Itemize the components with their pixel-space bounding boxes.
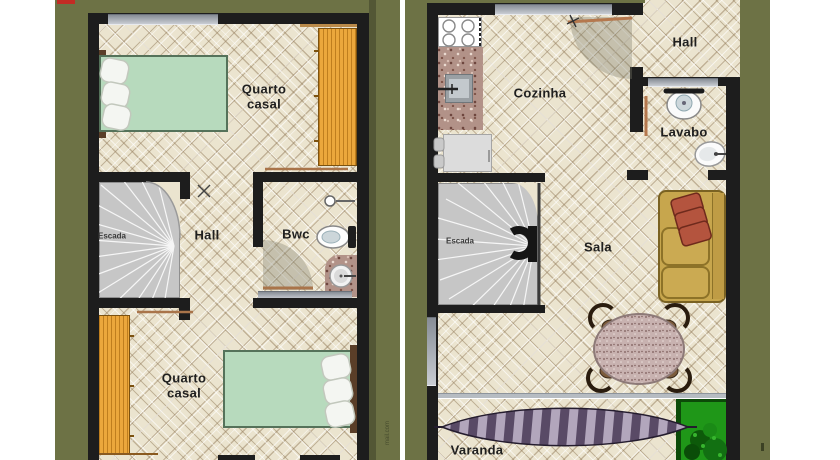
room-label-quarto-casal-upper: Quarto casal bbox=[242, 82, 286, 111]
left-plan-edge-shadow bbox=[369, 0, 376, 460]
floorplan-page: Quarto casal Hall Bwc Escada Quarto casa… bbox=[0, 0, 840, 460]
room-label-hall-left: Hall bbox=[194, 229, 219, 244]
wall-bwc-left bbox=[253, 182, 263, 247]
tiny-watermark-mark bbox=[761, 443, 764, 451]
double-bed-icon bbox=[223, 350, 355, 428]
room-label-hall-right: Hall bbox=[672, 36, 697, 51]
panel-divider bbox=[400, 0, 405, 460]
room-label-quarto-casal-lower: Quarto casal bbox=[162, 371, 206, 400]
wall-bottom-segment bbox=[300, 455, 340, 460]
red-mark bbox=[57, 0, 75, 4]
wardrobe-handle bbox=[130, 385, 134, 387]
wall-lavabo-bottom-right bbox=[708, 170, 740, 180]
wall-mid-lower-right bbox=[253, 298, 357, 308]
wall-mid-lower-left bbox=[88, 298, 190, 308]
wall-door-jamb bbox=[179, 172, 190, 199]
kitchen-table-icon bbox=[443, 134, 492, 172]
room-label-lavabo: Lavabo bbox=[660, 126, 707, 141]
planter-grass bbox=[681, 402, 726, 460]
wardrobe-icon bbox=[318, 28, 357, 166]
wall-right bbox=[357, 13, 369, 460]
wardrobe-handle bbox=[314, 95, 318, 97]
wall-lavabo-bottom-left bbox=[627, 170, 648, 180]
wall-stairs-bottom bbox=[427, 305, 545, 313]
window-left-sala bbox=[427, 317, 436, 386]
wall-left bbox=[427, 3, 438, 460]
wardrobe-handle bbox=[130, 335, 134, 337]
window-hall bbox=[648, 78, 718, 87]
window-kitchen bbox=[495, 4, 612, 15]
bed-headboard-icon bbox=[350, 345, 357, 433]
room-label-escada-right: Escada bbox=[446, 238, 474, 247]
room-label-cozinha: Cozinha bbox=[514, 87, 567, 102]
wardrobe-handle bbox=[314, 50, 318, 52]
double-bed-icon bbox=[99, 55, 228, 132]
kitchen-sink-basin bbox=[449, 79, 469, 98]
wardrobe-handle bbox=[314, 140, 318, 142]
wall-lavabo-left bbox=[630, 67, 643, 132]
room-label-escada-left: Escada bbox=[98, 233, 126, 242]
window-sill-varanda bbox=[438, 393, 726, 399]
wall-right bbox=[726, 77, 740, 460]
stove-icon bbox=[438, 17, 482, 47]
room-label-varanda: Varanda bbox=[451, 444, 504, 459]
wall-mid-upper-right bbox=[253, 172, 357, 182]
wall-door-jamb bbox=[179, 298, 190, 320]
sofa-backrest bbox=[712, 193, 724, 299]
wardrobe-base-line bbox=[90, 453, 158, 455]
closet-rod-icon bbox=[300, 24, 357, 27]
wall-bottom-segment bbox=[218, 455, 255, 460]
room-label-bwc: Bwc bbox=[282, 228, 310, 243]
wardrobe-handle bbox=[130, 435, 134, 437]
wall-mid-upper-left bbox=[99, 172, 190, 182]
room-label-sala: Sala bbox=[584, 241, 612, 256]
window-top bbox=[108, 14, 218, 25]
watermark-text: mail.com bbox=[385, 418, 391, 448]
sofa-cushion bbox=[661, 227, 710, 266]
sofa-cushion bbox=[661, 266, 710, 299]
wall-stairs-top bbox=[427, 173, 545, 182]
